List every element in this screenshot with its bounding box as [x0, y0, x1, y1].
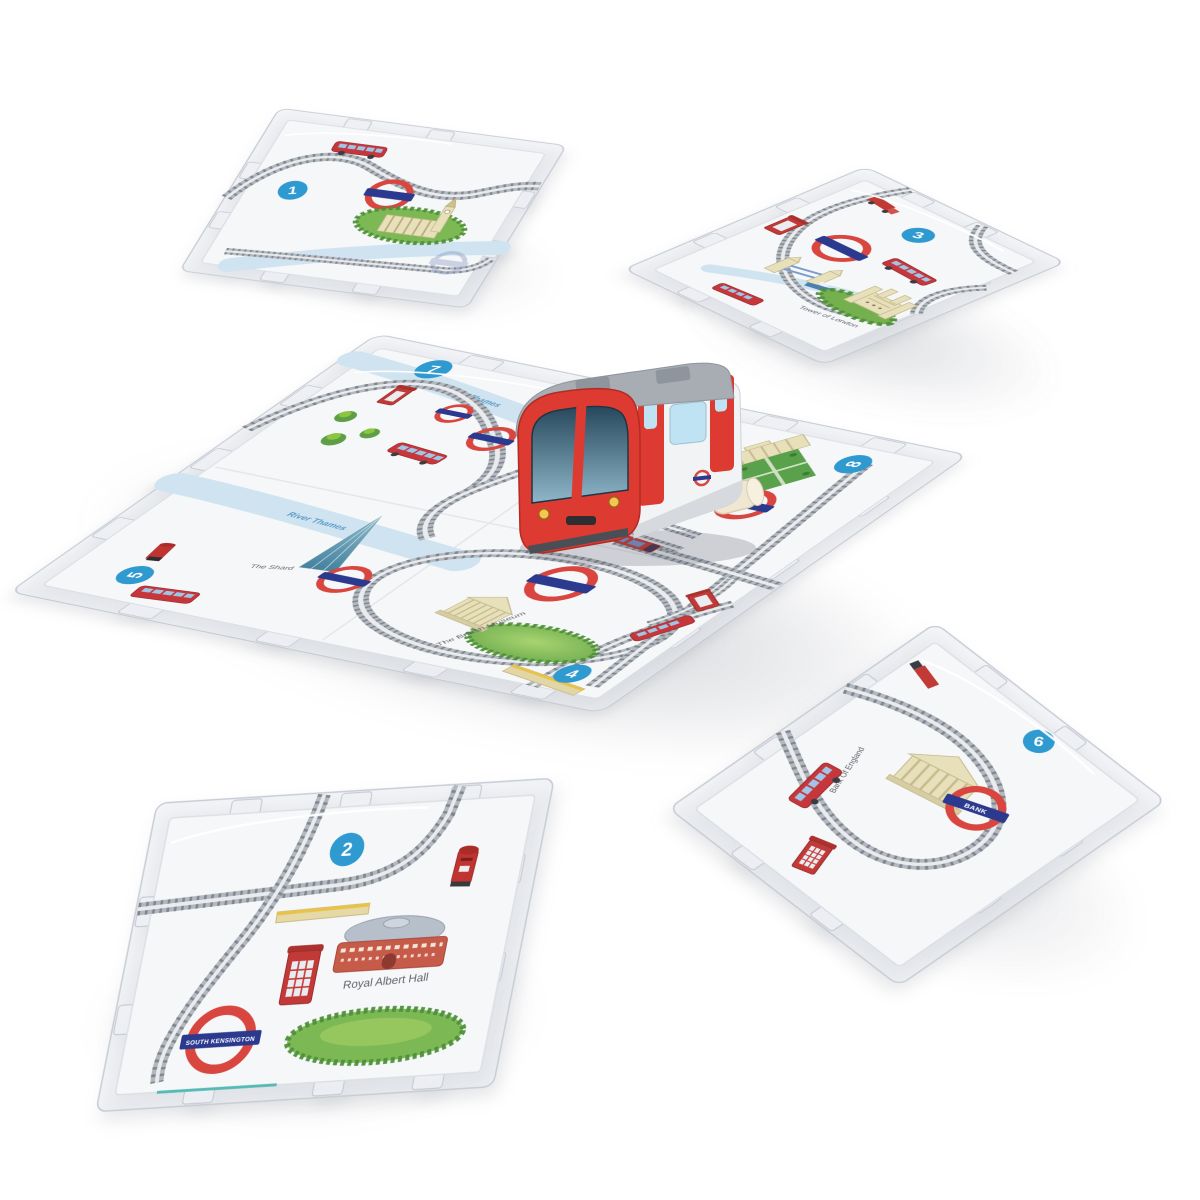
- puzzle-tile-1: 1: [201, 120, 546, 296]
- front-grille: [566, 516, 596, 525]
- headlight-right: [609, 497, 619, 507]
- wind-up-tube-train: [488, 340, 778, 580]
- toy-train-puzzle-photo: 1: [0, 0, 1200, 1200]
- tile-surface: [695, 642, 1140, 967]
- puzzle-tile-3: Tower of London 3: [653, 180, 1036, 351]
- headlight-left: [539, 509, 549, 519]
- puzzle-tile-2: Royal Albert Hall SOUTH KENSINGTON 2: [115, 795, 535, 1095]
- train-front: [518, 389, 640, 554]
- side-window: [670, 401, 706, 445]
- puzzle-tile-6: Bank Of England BANK 6: [695, 642, 1140, 967]
